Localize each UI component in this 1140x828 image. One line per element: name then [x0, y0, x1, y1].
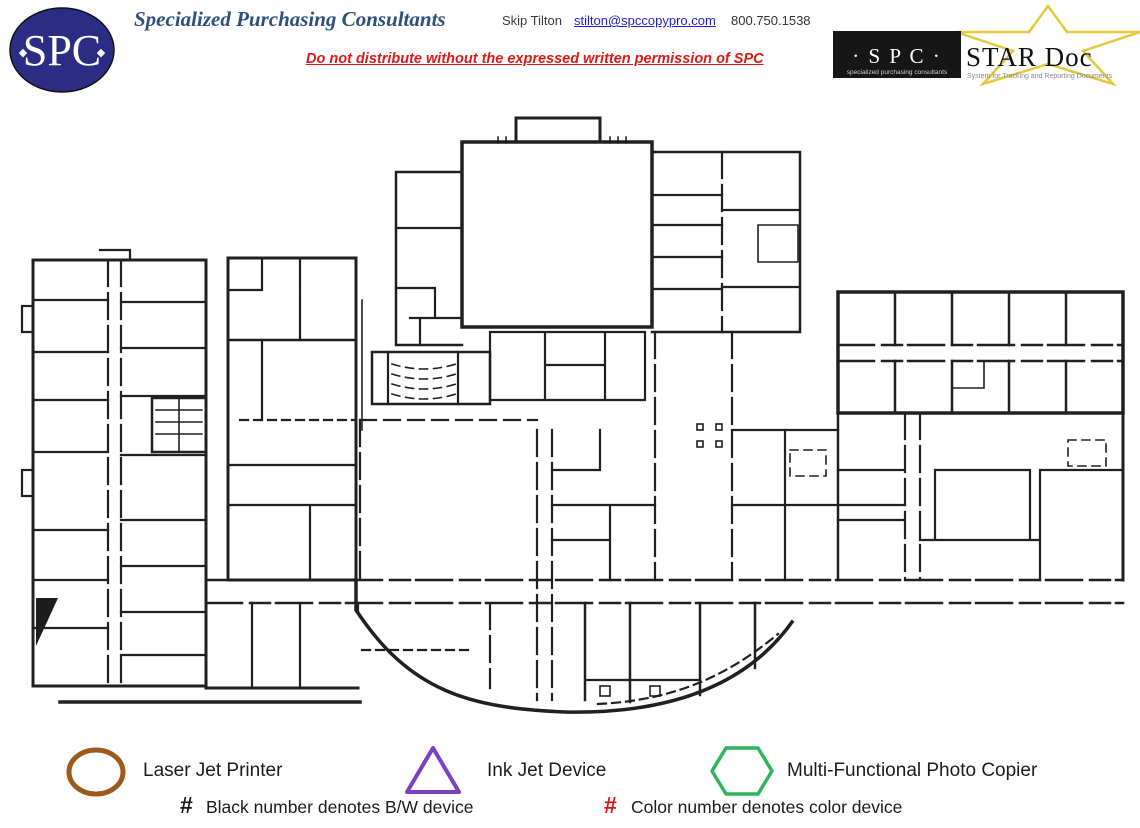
contact-name: Skip Tilton — [502, 13, 562, 28]
color-note-text: Color number denotes color device — [631, 797, 902, 818]
ellipse-shape — [69, 750, 123, 794]
contact-email-link[interactable]: stilton@spccopypro.com — [574, 13, 716, 28]
photo-copier-label: Multi-Functional Photo Copier — [787, 760, 1037, 782]
ramp-hatch — [36, 598, 58, 646]
star-logo-spc-subtext: specialized purchasing consultants — [847, 69, 948, 76]
distribution-notice: Do not distribute without the expressed … — [306, 51, 764, 67]
color-hash-symbol: # — [604, 792, 617, 819]
main-corridor — [206, 580, 1123, 603]
bw-hash-symbol: # — [180, 792, 193, 819]
star-doc-logo: · S P C · specialized purchasing consult… — [826, 4, 1140, 88]
right-mid-section — [838, 413, 1123, 580]
laser-jet-printer-label: Laser Jet Printer — [143, 760, 282, 782]
ink-jet-device-label: Ink Jet Device — [487, 760, 606, 782]
spc-logo-right-diamond: ◆ — [97, 47, 106, 59]
spc-logo-left-diamond: ◆ — [19, 47, 28, 59]
star-doc-product-subtext: System for Tracking and Reporting Docume… — [967, 73, 1113, 80]
bw-note-text: Black number denotes B/W device — [206, 797, 474, 818]
photo-copier-icon — [710, 745, 774, 797]
star-logo-spc-text: · S P C · — [852, 44, 942, 68]
cafeteria-arc — [356, 580, 792, 712]
right-classroom-grid — [838, 292, 1123, 413]
document-page: SPC ◆ ◆ Specialized Purchasing Consultan… — [0, 0, 1140, 828]
spc-oval-logo: SPC ◆ ◆ — [8, 6, 116, 94]
hexagon-shape — [712, 748, 772, 794]
contact-phone: 800.750.1538 — [731, 13, 811, 28]
ink-jet-device-icon — [403, 743, 463, 797]
central-block — [396, 118, 800, 345]
left-wing — [22, 250, 206, 686]
second-wing — [228, 258, 362, 580]
floor-plan — [0, 96, 1140, 744]
star-doc-product-name: STAR Doc — [966, 42, 1093, 72]
company-title: Specialized Purchasing Consultants — [134, 7, 446, 32]
lecture-hall — [372, 352, 490, 404]
laser-jet-printer-icon — [66, 747, 126, 797]
spc-logo-text: SPC — [23, 26, 101, 75]
triangle-shape — [407, 748, 459, 792]
